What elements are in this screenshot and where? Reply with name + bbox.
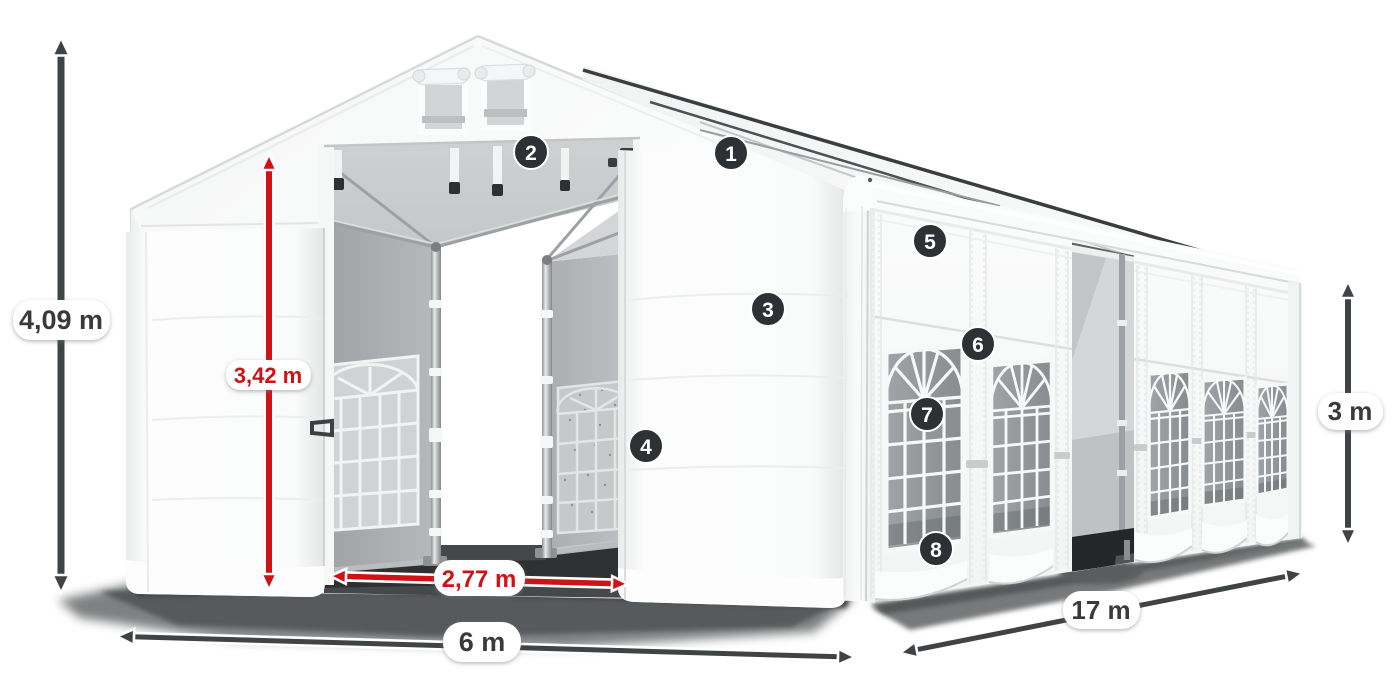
svg-text:17 m: 17 m [1071, 595, 1130, 625]
svg-text:7: 7 [921, 404, 933, 427]
svg-text:3: 3 [762, 299, 774, 322]
svg-text:2: 2 [525, 142, 537, 165]
svg-text:2,77 m: 2,77 m [442, 566, 517, 593]
svg-text:4,09 m: 4,09 m [19, 305, 103, 335]
svg-text:3,42 m: 3,42 m [234, 363, 303, 388]
svg-text:1: 1 [725, 143, 737, 166]
svg-text:5: 5 [924, 231, 936, 254]
svg-text:6 m: 6 m [459, 627, 506, 657]
svg-text:4: 4 [640, 436, 652, 459]
svg-text:6: 6 [972, 334, 984, 357]
svg-text:3 m: 3 m [1328, 396, 1373, 426]
svg-text:8: 8 [930, 539, 942, 562]
